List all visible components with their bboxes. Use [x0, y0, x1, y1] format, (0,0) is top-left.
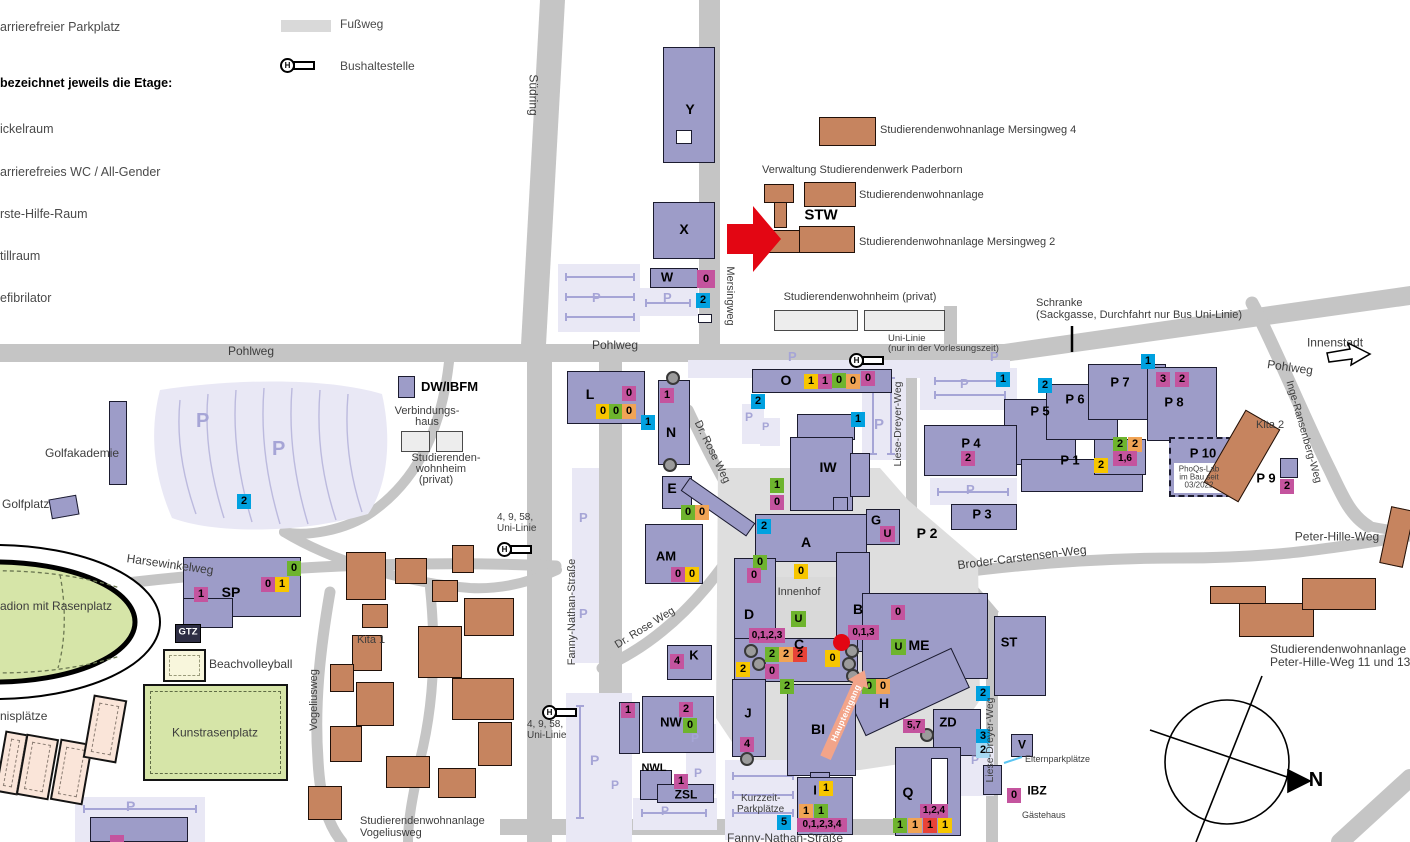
- label-parking: P 2: [917, 526, 938, 542]
- floor-badge: 0: [287, 561, 301, 576]
- floor-badge: 2: [751, 394, 765, 409]
- parking-letter: P: [874, 416, 884, 433]
- kita1-building: [464, 598, 514, 636]
- floor-badge: 3: [1156, 372, 1170, 387]
- floor-badge: 1: [770, 478, 784, 493]
- kita1-building: [438, 768, 476, 798]
- parking-p9: [1280, 458, 1298, 478]
- parking-letter: P: [590, 752, 599, 768]
- bus-line-label: 4, 9, 58,: [527, 719, 563, 730]
- map-label: (privat): [419, 474, 453, 486]
- floor-badge: 1: [1141, 354, 1155, 369]
- bus-stop-stem: [555, 708, 577, 717]
- legend-fussweg-label: Fußweg: [340, 18, 383, 31]
- compass-north-arrow: [1288, 770, 1310, 792]
- parking-letter: P: [788, 349, 797, 364]
- label-parking: P 1: [1060, 454, 1079, 469]
- street-label: Pohlweg: [592, 339, 638, 352]
- floor-badge: 0: [846, 374, 860, 389]
- floor-badge: 2: [1038, 378, 1052, 393]
- kita1-building: [330, 726, 362, 762]
- floor-badge: 2: [765, 647, 779, 662]
- label-building-i: I: [813, 784, 817, 799]
- floor-badge: 0: [697, 270, 715, 288]
- map-label: Studierendenwohnanlage Mersingweg 2: [859, 236, 1055, 248]
- label-building-v: V: [1018, 738, 1026, 751]
- floor-badge: 1: [660, 388, 674, 403]
- stw-mersingweg2: [799, 226, 855, 253]
- parking-letter: P: [579, 510, 588, 525]
- floor-badge: 2: [1175, 372, 1189, 387]
- map-label: Kita 1: [357, 634, 385, 646]
- map-label: (nur in der Vorlesungszeit): [888, 344, 999, 355]
- floor-badge: 2: [780, 679, 794, 694]
- road-corner: [1340, 778, 1410, 842]
- kita1-building: [386, 756, 430, 788]
- direction-label: Innenstadt: [1307, 336, 1363, 349]
- parking-letter: P: [272, 438, 285, 461]
- floor-badge: 0: [891, 605, 905, 620]
- bus-node: [752, 657, 766, 671]
- floor-badge: 0: [596, 404, 610, 419]
- floor-badge: 1: [893, 818, 907, 833]
- res-building: [1379, 506, 1410, 568]
- floor-badge: 1: [814, 804, 828, 819]
- location-dot: [833, 634, 850, 651]
- building-southwest: [90, 817, 188, 842]
- label-building-b: B: [853, 602, 863, 618]
- floor-badge: [110, 835, 124, 842]
- street-label: Broder-Carstensen-Weg: [957, 543, 1088, 572]
- footpath-swatch: [281, 20, 331, 32]
- kita1-building: [330, 664, 354, 692]
- kita1-building: [395, 558, 427, 584]
- road-harsewinkelweg: [55, 564, 556, 592]
- floor-badge: 0: [747, 568, 761, 583]
- stadium-field: [0, 562, 135, 682]
- bus-node: [740, 752, 754, 766]
- floor-badge: 0: [671, 567, 685, 582]
- peter-hille-building: [1210, 586, 1266, 604]
- label-building-c: C: [794, 637, 804, 653]
- floor-badge: 0: [685, 567, 699, 582]
- floor-badge: 0: [832, 373, 846, 388]
- map-label: Studierendenwohnheim (privat): [784, 291, 937, 303]
- legend-item: arrierefreier Parkplatz: [0, 20, 120, 34]
- floor-badge: 1: [908, 818, 922, 833]
- parking-row-line: [579, 706, 581, 818]
- bus-node: [744, 644, 758, 658]
- compass: [1150, 676, 1310, 842]
- label-parking: P 8: [1164, 396, 1183, 411]
- map-label: Gästehaus: [1022, 810, 1066, 820]
- floor-badge: 0,1,2,3,4: [797, 818, 847, 832]
- map-label: Kita 2: [1256, 419, 1284, 431]
- golfplatz-building: [48, 495, 79, 520]
- map-label: Vogeliusweg: [360, 827, 422, 839]
- floor-badge: 4: [670, 654, 684, 669]
- bus-node: [663, 458, 677, 472]
- street-label: Peter-Hille-Weg: [1295, 530, 1379, 543]
- floor-badge: 1: [275, 577, 289, 592]
- building-y-court: [676, 130, 692, 144]
- floor-badge: 2: [1280, 479, 1294, 494]
- stw-building: [764, 184, 794, 203]
- stadium-markings: [0, 571, 120, 673]
- floor-badge: 0: [794, 564, 808, 579]
- label-building-n: N: [666, 425, 676, 441]
- map-label: Studierendenwohnanlage Mersingweg 4: [880, 124, 1076, 136]
- floor-badge: 1: [819, 781, 833, 796]
- kita1-building: [432, 580, 458, 602]
- floor-badge: 0: [622, 386, 636, 401]
- street-label: Dr. Rose Weg: [692, 419, 733, 486]
- stw-mersingweg4: [819, 117, 876, 146]
- parking-letter: P: [611, 778, 619, 792]
- wohnheim-privat: [436, 431, 463, 452]
- building-st: [994, 616, 1046, 696]
- building-iw: [833, 497, 848, 511]
- floor-badge: 1: [818, 374, 832, 389]
- street-label: Fanny-Nathan-Straße: [566, 559, 578, 665]
- floor-badge: 0: [876, 679, 890, 694]
- bus-line-label: Uni-Linie: [497, 523, 536, 534]
- golfakademie-building: [109, 401, 127, 485]
- map-label: Verwaltung Studierendenwerk Paderborn: [762, 164, 963, 176]
- parking-letter: P: [762, 421, 769, 433]
- floor-badge: 1: [804, 374, 818, 389]
- map-label: Innenhof: [778, 586, 821, 598]
- parking-letter: P: [691, 731, 699, 745]
- label-building-y: Y: [685, 102, 694, 118]
- label-building-g: G: [871, 514, 881, 529]
- floor-badge: 0: [825, 650, 840, 667]
- floor-badge: 2: [1128, 437, 1142, 452]
- kita1-building: [346, 552, 386, 600]
- floor-badge: 2: [779, 647, 793, 662]
- bus-stop-stem: [862, 356, 884, 365]
- parking-letter: P: [960, 376, 969, 391]
- legend-item: rste-Hilfe-Raum: [0, 207, 88, 221]
- floor-badge: 2: [736, 662, 750, 677]
- label-building-e: E: [667, 481, 676, 497]
- map-label: adion mit Rasenplatz: [0, 600, 112, 613]
- legend-item: ickelraum: [0, 122, 54, 136]
- building-iw: [850, 453, 870, 497]
- legend-dw-ibfm: DW/IBFM: [421, 380, 478, 395]
- wohnheim-privat: [864, 310, 945, 331]
- parking-letter: P: [745, 410, 753, 424]
- label-building-iw: IW: [819, 460, 836, 476]
- label-building-d: D: [744, 607, 754, 623]
- street-label: Liese-Dreyer-Weg: [893, 382, 905, 467]
- stw-building: [769, 230, 801, 253]
- parking-letter: P: [694, 766, 702, 780]
- label-building-h: H: [879, 696, 889, 712]
- floor-badge: 1,6: [1113, 451, 1137, 466]
- floor-badge: 1: [621, 703, 635, 718]
- label-building-zd: ZD: [939, 716, 956, 731]
- label-building-ibz: IBZ: [1027, 784, 1046, 797]
- kita1-building: [418, 626, 462, 678]
- floor-badge: 1: [851, 412, 865, 427]
- floor-badge: 2: [1094, 458, 1108, 473]
- kita1-building: [308, 786, 342, 820]
- legend-dw-ibfm-swatch: [398, 376, 415, 398]
- map-label: Elternparkplätze: [1025, 754, 1090, 764]
- street-label: Mersingweg: [724, 266, 736, 325]
- street-label: Pohlweg: [228, 345, 274, 358]
- street-label: Pohlweg: [1266, 358, 1313, 378]
- floor-badge: U: [880, 526, 895, 542]
- legend-item: arrierefreies WC / All-Gender: [0, 165, 160, 179]
- floor-badge: 0: [861, 371, 875, 386]
- floor-badge: 0: [622, 404, 636, 419]
- campus-map: PPPPPPPPPPPPPPPPPPPP 0200001111000211000…: [0, 0, 1410, 842]
- parking-row-line: [733, 775, 793, 777]
- floor-badge: 1: [799, 804, 813, 819]
- p10-note: 03/2022: [1185, 482, 1214, 491]
- floor-badge: 0: [609, 404, 623, 419]
- golf-parking-area: [154, 381, 387, 529]
- label-building-k: K: [689, 649, 698, 664]
- label-parking: P 5: [1030, 405, 1049, 420]
- legend-bus-label: Bushaltestelle: [340, 60, 415, 73]
- floor-badge: 0: [681, 505, 695, 520]
- label-parking: P 6: [1065, 393, 1084, 408]
- kita1-building: [452, 545, 474, 573]
- parking-letter: P: [592, 290, 601, 305]
- compass-north-label: N: [1309, 769, 1323, 791]
- floor-badge: 1: [641, 415, 655, 430]
- peter-hille-building: [1302, 578, 1376, 610]
- volleyball-court: [163, 649, 206, 682]
- label-building-am: AM: [656, 550, 676, 565]
- parking-row-line: [935, 380, 1005, 382]
- road-liese-dreyer-upper: [906, 362, 917, 520]
- street-label: Fanny-Nathan-Straße: [727, 832, 843, 842]
- legend-item: bezeichnet jeweils die Etage:: [0, 76, 172, 90]
- label-parking: P 3: [972, 508, 991, 523]
- floor-badge: 0,1,2,3: [749, 628, 785, 643]
- label-building-nw: NW: [660, 716, 682, 731]
- building-w: [650, 268, 698, 288]
- parking-letter: P: [661, 804, 669, 818]
- parking-row-line: [642, 812, 706, 814]
- label-parking: P 10: [1190, 447, 1217, 462]
- map-label: Studierendenwohnanlage: [360, 815, 485, 827]
- label-parking: P 4: [961, 437, 980, 452]
- floor-badge: 1: [194, 587, 208, 602]
- tennis-court: [83, 695, 128, 764]
- map-label: Kurzzeit-: [741, 793, 780, 804]
- verbindungshaus: [401, 431, 430, 452]
- floor-badge: 0: [765, 664, 779, 679]
- map-label: Kunstrasenplatz: [172, 726, 258, 739]
- label-building-sp: SP: [222, 585, 241, 601]
- stadium-track: [0, 545, 160, 699]
- floor-badge: 0: [261, 577, 275, 592]
- map-label: Parkplätze: [737, 804, 784, 815]
- wohnheim-privat: [774, 310, 858, 331]
- label-parking: P 7: [1110, 376, 1129, 391]
- map-label: Golfakademie: [45, 447, 119, 460]
- floor-badge: 1: [938, 818, 952, 833]
- street-label: Liese-Dreyer-Weg: [985, 698, 997, 783]
- bus-line-label: 4, 9, 58,: [497, 512, 533, 523]
- map-label: Beachvolleyball: [209, 658, 292, 671]
- small-structure: [698, 314, 712, 323]
- floor-badge: 2: [961, 451, 975, 466]
- floor-badge: 0: [695, 505, 709, 520]
- road-stub: [944, 306, 957, 346]
- label-building-gtz: GTZ: [179, 628, 198, 639]
- floor-badge: 5,7: [903, 719, 925, 733]
- label-building-a: A: [801, 535, 811, 551]
- floor-badge: 2: [1113, 437, 1127, 452]
- label-parking: P 9: [1256, 472, 1275, 487]
- map-label: haus: [415, 416, 439, 428]
- floor-badge: 2: [696, 293, 710, 308]
- floor-badge: 1: [996, 372, 1010, 387]
- floor-badge: 0: [1007, 788, 1021, 803]
- eltern-arrow: [1004, 757, 1022, 763]
- stw-building: [774, 202, 787, 228]
- label-building-x: X: [679, 222, 688, 238]
- label-building-bi: BI: [811, 722, 825, 738]
- parking-letter: P: [196, 410, 209, 433]
- golf-parking-rows: [179, 388, 362, 524]
- kita1-building: [362, 604, 388, 628]
- floor-badge: 1,2,4: [920, 804, 948, 818]
- floor-badge: 4: [740, 737, 754, 752]
- kita1-building: [478, 722, 512, 766]
- legend-item: tillraum: [0, 249, 40, 263]
- label-building-zsl: ZSL: [675, 788, 698, 801]
- label-building-me: ME: [909, 638, 930, 654]
- parking-row-line: [566, 316, 634, 318]
- bus-node: [666, 371, 680, 385]
- bus-stop-stem: [510, 545, 532, 554]
- label-building-o: O: [781, 373, 792, 389]
- label-building-st: ST: [1001, 636, 1018, 651]
- label-building-l: L: [586, 387, 595, 403]
- floor-badge: 1: [923, 818, 937, 833]
- map-label: Peter-Hille-Weg 11 und 13: [1270, 656, 1410, 669]
- bus-stop-stem: [293, 61, 315, 70]
- map-label: (Sackgasse, Durchfahrt nur Bus Uni-Linie…: [1036, 309, 1242, 321]
- parking-letter: P: [579, 606, 588, 621]
- floor-badge: 0,1,3: [848, 625, 879, 640]
- parking-letter: P: [663, 290, 672, 305]
- floor-badge: 0: [683, 718, 697, 733]
- parking-row-line: [566, 276, 634, 278]
- stw-verwaltung: [804, 182, 856, 207]
- label-building-w: W: [661, 271, 673, 286]
- label-stw: STW: [804, 208, 837, 225]
- map-label: Schranke: [1036, 297, 1082, 309]
- street-label: Südring: [526, 74, 539, 115]
- label-building-q: Q: [903, 785, 914, 801]
- map-label: Studierendenwohnanlage: [859, 189, 984, 201]
- parking-row-line: [935, 394, 1005, 396]
- floor-badge: 2: [237, 494, 251, 509]
- street-label: Vogeliusweg: [308, 669, 320, 731]
- parking-row-line: [84, 808, 196, 810]
- bus-line-label: Uni-Linie: [527, 730, 566, 741]
- map-label: nisplätze: [0, 710, 47, 723]
- parking-letter: P: [966, 482, 975, 497]
- map-label: Golfplatz: [2, 498, 49, 511]
- floor-badge: U: [791, 611, 806, 627]
- kita1-building: [356, 682, 394, 726]
- legend-item: efibrilator: [0, 291, 51, 305]
- road-south: [527, 362, 552, 842]
- floor-badge: 2: [757, 519, 771, 534]
- floor-badge: 5: [777, 815, 791, 830]
- label-building-j: J: [744, 707, 751, 722]
- floor-badge: U: [891, 639, 906, 655]
- kita1-building: [452, 678, 514, 720]
- parking-letter: P: [126, 798, 135, 814]
- floor-badge: 0: [770, 495, 784, 510]
- label-building-nwl: NWL: [641, 762, 666, 774]
